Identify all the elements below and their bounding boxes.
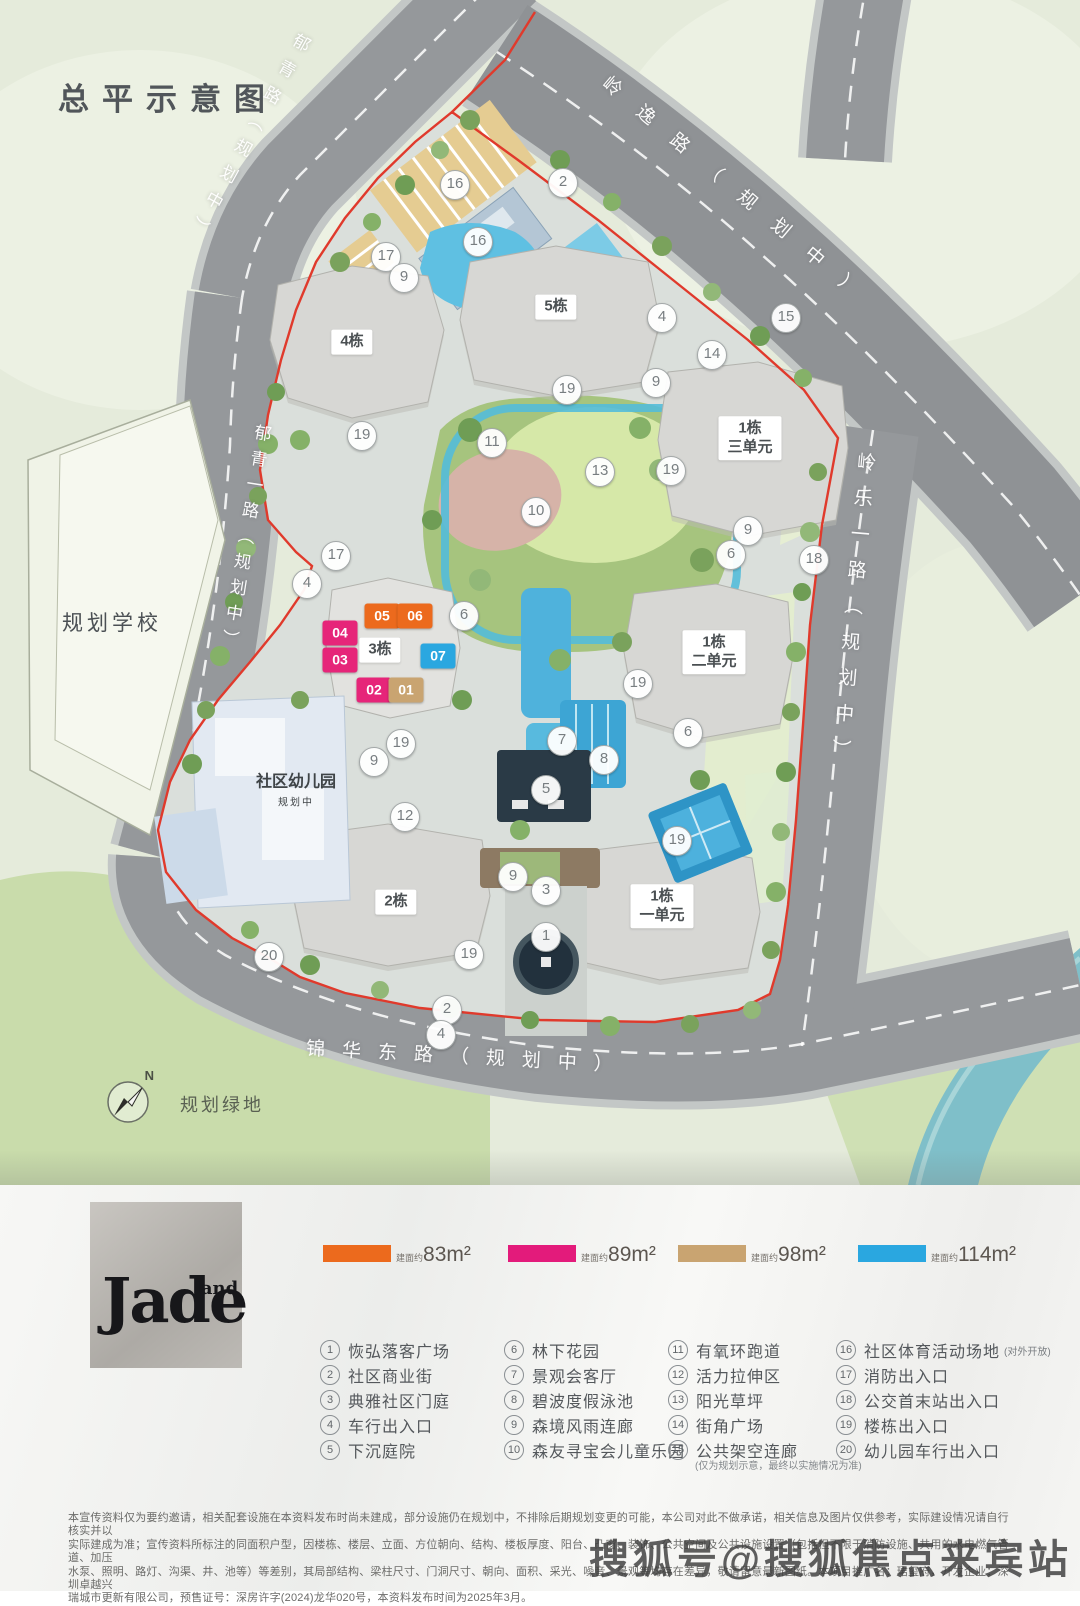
legend-item-note: (对外开放)	[1004, 1347, 1051, 1358]
swatch-label-2: 建面约89m²	[581, 1243, 656, 1267]
swatch-label-4: 建面约114m²	[931, 1243, 1016, 1267]
legend-item-label: 活力拉伸区	[696, 1369, 781, 1386]
legend-item-label: 公交首末站出入口	[864, 1394, 1000, 1411]
legend-item-number: 11	[668, 1340, 688, 1360]
legend-item-label: 幼儿园车行出入口	[864, 1444, 1000, 1461]
legend-item-number: 9	[504, 1415, 524, 1435]
watermark: 搜狐号@搜狐焦点来宾站	[589, 1527, 1072, 1585]
legend-item-19: 19楼栋出入口	[836, 1413, 1066, 1438]
legend-item-label: 公共架空连廊	[696, 1444, 798, 1461]
legend-item-number: 17	[836, 1365, 856, 1385]
brand-sub: land	[194, 1278, 238, 1299]
legend-item-label: 阳光草坪	[696, 1394, 764, 1411]
legend-item-label: 碧波度假泳池	[532, 1394, 634, 1411]
swatch-prefix: 建面约	[396, 1253, 423, 1263]
legend-item-label: 景观会客厅	[532, 1369, 617, 1386]
swatch-color-2	[508, 1245, 576, 1262]
legend-item-16: 16社区体育活动场地(对外开放)	[836, 1338, 1066, 1363]
legend-item-number: 2	[320, 1365, 340, 1385]
legend-item-number: 4	[320, 1415, 340, 1435]
swatch-prefix: 建面约	[931, 1253, 958, 1263]
legend-item-label: 恢弘落客广场	[348, 1344, 450, 1361]
swatch-area: 98m²	[778, 1243, 826, 1266]
legend-item-label: 下沉庭院	[348, 1444, 416, 1461]
legend-item-number: 19	[836, 1415, 856, 1435]
legend-item-label: 典雅社区门庭	[348, 1394, 450, 1411]
legend-item-label: 有氧环跑道	[696, 1344, 781, 1361]
legend-item-number: 16	[836, 1340, 856, 1360]
swatch-prefix: 建面约	[581, 1253, 608, 1263]
legend-item-number: 15	[668, 1440, 688, 1460]
swatch-area: 89m²	[608, 1243, 656, 1266]
swatch-area: 83m²	[423, 1243, 471, 1266]
legend-item-number: 5	[320, 1440, 340, 1460]
legend-item-18: 18公交首末站出入口	[836, 1388, 1066, 1413]
legend-item-number: 8	[504, 1390, 524, 1410]
swatch-prefix: 建面约	[751, 1253, 778, 1263]
legend-item-label: 森友寻宝会儿童乐园	[532, 1444, 685, 1461]
legend-item-label: 楼栋出入口	[864, 1419, 949, 1436]
legend-item-number: 13	[668, 1390, 688, 1410]
legend-item-number: 7	[504, 1365, 524, 1385]
legend-item-number: 18	[836, 1390, 856, 1410]
legend-item-number: 12	[668, 1365, 688, 1385]
legend-item-label: 林下花园	[532, 1344, 600, 1361]
legend-item-number: 10	[504, 1440, 524, 1460]
brand-logo: Jade land	[90, 1202, 242, 1368]
legend-item-label: 社区体育活动场地	[864, 1344, 1000, 1361]
legend-item-number: 3	[320, 1390, 340, 1410]
legend-item-number: 6	[504, 1340, 524, 1360]
legend-item-label: 消防出入口	[864, 1369, 949, 1386]
legend-item-label: 森境风雨连廊	[532, 1419, 634, 1436]
swatch-label-3: 建面约98m²	[751, 1243, 826, 1267]
swatch-area: 114m²	[958, 1243, 1016, 1266]
legend-item-number: 1	[320, 1340, 340, 1360]
legend-panel: Jade land 建面约83m²建面约89m²建面约98m²建面约114m² …	[0, 1185, 1080, 1591]
legend-item-number: 14	[668, 1415, 688, 1435]
legend-column-4: 16社区体育活动场地(对外开放)17消防出入口18公交首末站出入口19楼栋出入口…	[836, 1338, 1066, 1463]
legend-item-number: 20	[836, 1440, 856, 1460]
legend-item-20: 20幼儿园车行出入口	[836, 1438, 1066, 1463]
brand-word: Jade	[102, 1264, 246, 1337]
swatch-color-4	[858, 1245, 926, 1262]
swatch-color-3	[678, 1245, 746, 1262]
site-plan-map: 总平示意图 郁青路（规划中） 郁青一路（规划中） 岭逸路（规划中） 岭乐一路（规…	[0, 0, 1080, 1185]
site-plan-art	[0, 0, 1080, 1185]
legend-item-label: 街角广场	[696, 1419, 764, 1436]
legend-item-17: 17消防出入口	[836, 1363, 1066, 1388]
legend-item-label: 社区商业街	[348, 1369, 433, 1386]
legend-item-label: 车行出入口	[348, 1419, 433, 1436]
swatch-label-1: 建面约83m²	[396, 1243, 471, 1267]
swatch-color-1	[323, 1245, 391, 1262]
